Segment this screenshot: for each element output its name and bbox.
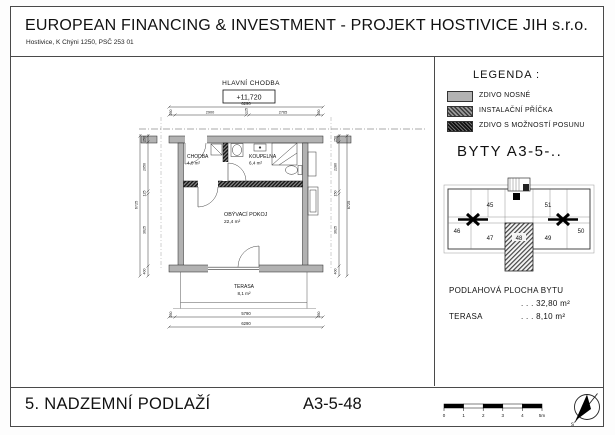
- dim-text: 250: [143, 136, 147, 142]
- bath-door-arc: [228, 163, 246, 181]
- terrace-area-value: . . . 8,10 m²: [521, 312, 565, 321]
- dim-text: 400: [143, 269, 147, 275]
- company-address: Hostivice, K Chýni 1250, PSČ 253 01: [26, 39, 134, 46]
- scale-tick-label: 5m: [539, 413, 546, 418]
- floor-area-value: . . . 32,80 m²: [521, 299, 570, 308]
- key-plan-unit-45: 45: [487, 203, 494, 209]
- shaft-right-upper: [308, 152, 316, 176]
- north-label: s: [571, 422, 574, 428]
- floor-area-label: PODLAHOVÁ PLOCHA BYTU: [449, 286, 563, 295]
- room-obyvaci-name: OBÝVACÍ POKOJ: [224, 211, 268, 218]
- terrace-door-arc: [238, 246, 259, 267]
- dim-text: 5790: [241, 311, 251, 316]
- dim-text: 250: [169, 110, 173, 116]
- title-block: EUROPEAN FINANCING & INVESTMENT - PROJEK…: [11, 7, 603, 57]
- dim-text: 2900: [206, 111, 214, 115]
- dim-text: 2050: [143, 163, 147, 171]
- company-title: EUROPEAN FINANCING & INVESTMENT - PROJEK…: [25, 17, 588, 35]
- dim-text: 6290: [241, 321, 251, 326]
- key-plan-unit-46: 46: [454, 229, 461, 235]
- dim-text: 125: [245, 108, 249, 114]
- scale-tick-label: 1: [462, 413, 465, 418]
- dim-text: 250: [169, 312, 173, 318]
- dim-text: 2280: [334, 163, 338, 171]
- dim-text: 250: [317, 312, 321, 318]
- room-obyvaci-area: 22,4 m²: [224, 219, 241, 225]
- scale-bar: 0 1 2 3 4 5m: [436, 398, 561, 424]
- scale-tick-label: 0: [443, 413, 446, 418]
- room-chodba-area: 4,0 m²: [187, 161, 200, 166]
- entry-opening: [185, 135, 207, 143]
- dim-text: 150: [334, 191, 338, 197]
- dim-text: 6725: [347, 201, 351, 209]
- byty-label: BYTY A3-5-..: [457, 143, 562, 160]
- toilet-tank: [298, 166, 302, 175]
- terrace-opening: [208, 264, 259, 272]
- living-door-arc: [198, 187, 218, 207]
- room-terasa-area: 8,1 m²: [237, 291, 250, 296]
- key-plan-unit-51: 51: [545, 203, 552, 209]
- legend-swatch-instalacni-pricka: [447, 106, 473, 117]
- dim-text: 125: [143, 191, 147, 197]
- main-area: HLAVNÍ CHODBA +11,720 6290 250 2900: [11, 57, 603, 386]
- terrace-area-label: TERASA: [449, 312, 483, 321]
- dim-text: 400: [334, 269, 338, 275]
- legend-swatch-zdivo-posun: [447, 121, 473, 132]
- floor-plan-drawing: HLAVNÍ CHODBA +11,720 6290 250 2900: [11, 57, 434, 386]
- key-plan-unit-50: 50: [578, 229, 585, 235]
- scale-tick-label: 2: [482, 413, 485, 418]
- key-plan-unit-48-highlight: [505, 223, 533, 271]
- dim-text: 250: [334, 136, 338, 142]
- dim-text: 250: [317, 110, 321, 116]
- dim-text: 6290: [241, 101, 251, 106]
- legend-title: LEGENDA :: [473, 69, 540, 81]
- dim-text: 3625: [143, 226, 147, 234]
- legend-label: ZDIVO NOSNÉ: [479, 92, 531, 99]
- load-bearing-walls: [141, 136, 351, 272]
- unit-code: A3-5-48: [303, 395, 362, 414]
- legend-label: ZDIVO S MOŽNOSTÍ POSUNU: [479, 122, 585, 129]
- shaft-right-lower: [308, 187, 318, 215]
- corridor-label: HLAVNÍ CHODBA: [222, 78, 280, 87]
- key-plan-unit-48: 48: [516, 236, 523, 242]
- left-dim-chain: [139, 134, 150, 278]
- footer-bar: 5. NADZEMNÍ PODLAŽÍ A3-5-48 0 1 2 3: [11, 387, 603, 427]
- key-plan: 45 51 46 47 48 49 50: [443, 177, 595, 277]
- room-terasa-name: TERASA: [234, 284, 255, 290]
- legend-panel: LEGENDA : ZDIVO NOSNÉ INSTALAČNÍ PŘÍČKA …: [434, 57, 604, 386]
- dim-text: 3625: [334, 226, 338, 234]
- dim-text: 2765: [279, 111, 287, 115]
- dim-text: 6725: [135, 201, 139, 209]
- key-plan-unit-47: 47: [487, 236, 494, 242]
- sink-counter: [231, 144, 243, 157]
- room-chodba-name: CHODBA: [187, 154, 209, 160]
- room-koupelna-area: 6,4 m²: [249, 161, 262, 166]
- legend-swatch-zdivo-nosne: [447, 91, 473, 102]
- toilet: [286, 166, 298, 175]
- north-arrow-icon: s: [563, 389, 609, 429]
- drawing-sheet: EUROPEAN FINANCING & INVESTMENT - PROJEK…: [0, 0, 615, 435]
- floor-title: 5. NADZEMNÍ PODLAŽÍ: [25, 395, 210, 414]
- room-koupelna-name: KOUPELNA: [249, 154, 277, 160]
- sink: [232, 145, 241, 156]
- scale-tick-label: 3: [502, 413, 505, 418]
- key-plan-unit-49: 49: [545, 236, 552, 242]
- legend-label: INSTALAČNÍ PŘÍČKA: [479, 107, 553, 114]
- scale-tick-label: 4: [521, 413, 524, 418]
- sheet-frame: EUROPEAN FINANCING & INVESTMENT - PROJEK…: [10, 6, 604, 427]
